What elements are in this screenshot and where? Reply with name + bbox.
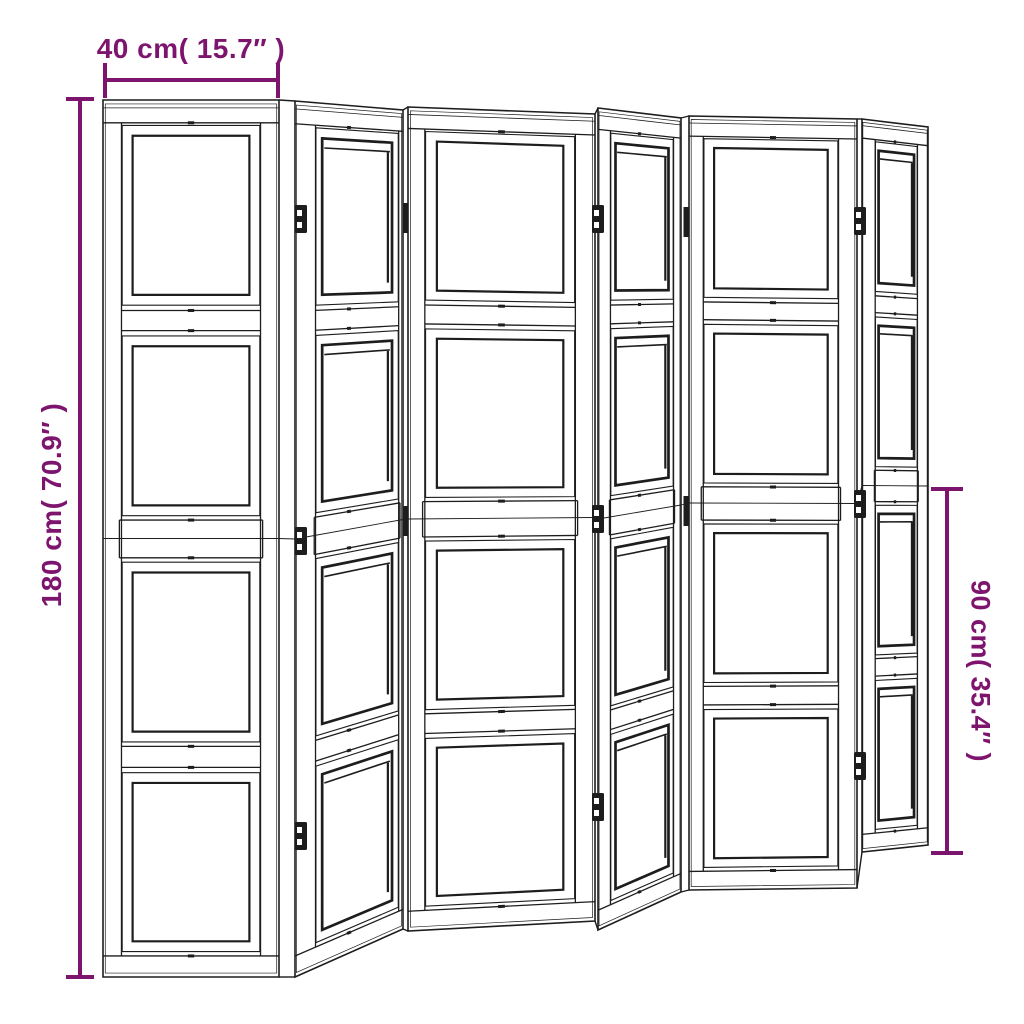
hinge-pin-icon [684,496,689,526]
panel-5 [689,116,857,890]
dimension-width: 40 cm( 15.7″ ) [97,33,286,98]
panel-1 [103,100,279,977]
dimension-label-height: 180 cm( 70.9″ ) [36,403,67,608]
hinge-icon [854,207,866,235]
hinge-icon [295,205,307,233]
panel-4 [598,108,681,930]
hinge-icon [592,505,604,533]
dimension-label-half-height: 90 cm( 35.4″ ) [966,580,996,762]
panel-3 [408,107,595,931]
hinge-icon [854,490,866,518]
hinge-icon [592,793,604,821]
hinge-icon [295,527,307,555]
diagram-canvas: 40 cm( 15.7″ ) 180 cm( 70.9″ ) 90 cm( 35… [0,0,1024,1024]
dimension-height: 180 cm( 70.9″ ) [36,99,94,977]
dimension-label-width: 40 cm( 15.7″ ) [97,33,286,64]
room-divider-diagram: 40 cm( 15.7″ ) 180 cm( 70.9″ ) 90 cm( 35… [0,0,1024,1024]
divider-panels [103,100,928,977]
hinge-pin-icon [403,203,408,233]
panel-6 [862,119,928,852]
hinge-icon [295,822,307,850]
hinge-pin-icon [684,207,689,237]
hinge-icon [854,752,866,780]
hinge-pin-icon [403,506,408,536]
hinge-icon [592,205,604,233]
dimension-half-height: 90 cm( 35.4″ ) [931,489,996,853]
panel-2 [295,101,403,977]
